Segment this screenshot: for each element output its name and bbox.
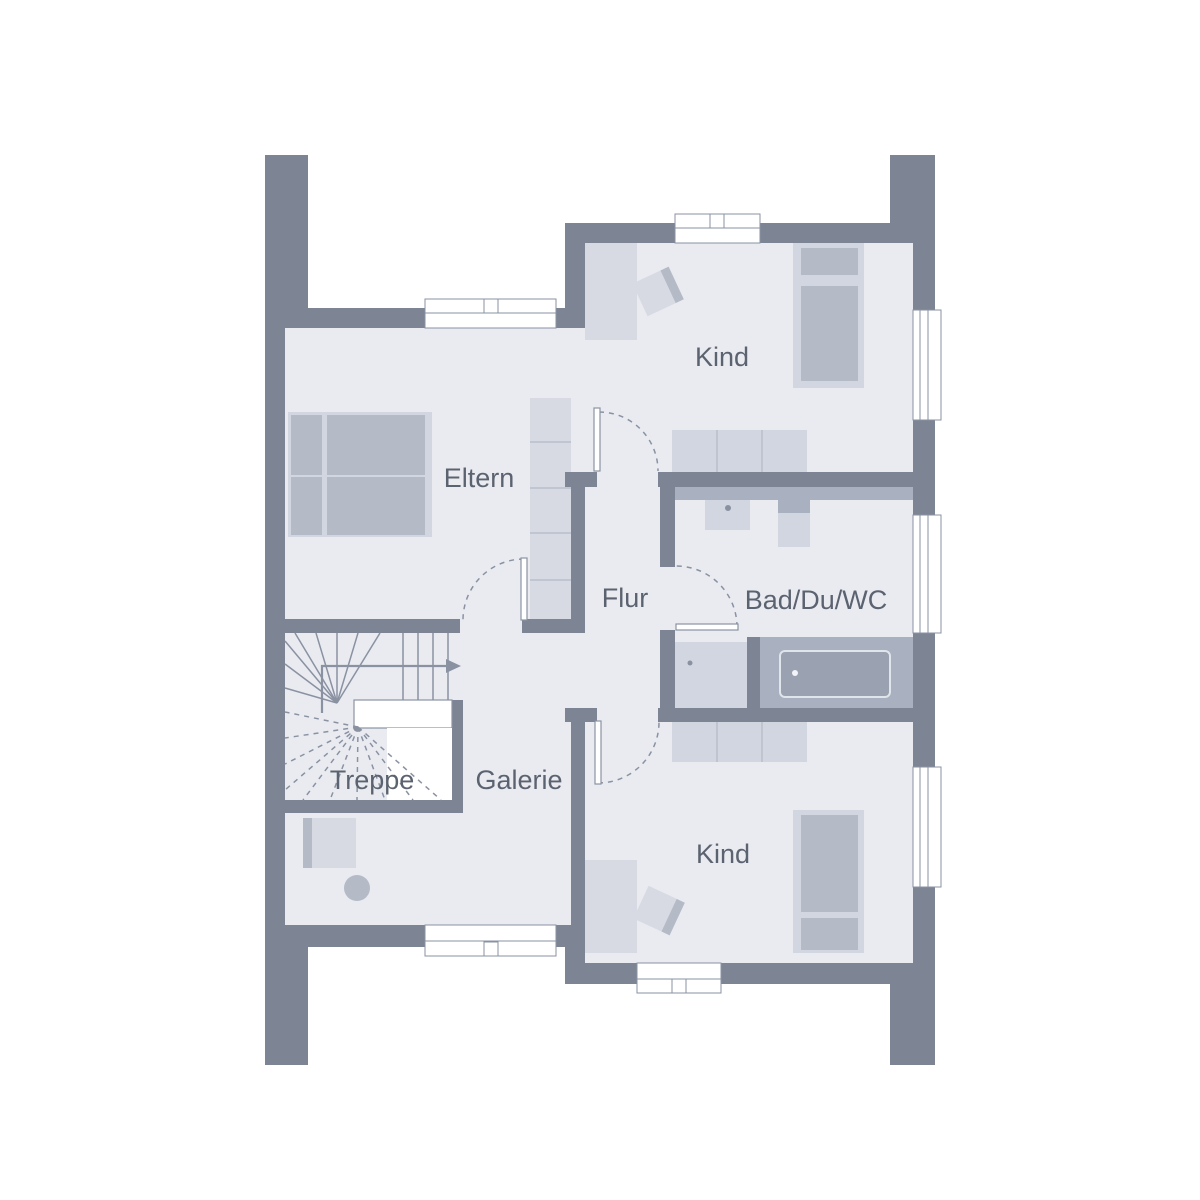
washbasin	[705, 500, 750, 530]
eltern-bottom-wall-pier	[522, 619, 583, 633]
eltern-wardrobe	[530, 398, 571, 628]
bad-left-wall-upper	[660, 487, 675, 567]
label-bad: Bad/Du/WC	[745, 585, 888, 615]
window-bad-right	[913, 515, 941, 633]
kind-top-bed	[793, 243, 864, 388]
kind-bottom-sideboard	[672, 718, 807, 762]
kind-top-wardrobe	[585, 243, 637, 340]
eltern-flur-wall	[571, 487, 585, 633]
window-galerie-bottom	[425, 925, 556, 956]
floor-plan-drawing: Eltern Kind Flur Bad/Du/WC Treppe Galeri…	[0, 0, 1200, 1200]
kind-top-sideboard	[672, 430, 807, 472]
galerie-chair	[344, 875, 370, 901]
galerie-kind-divider-wall	[571, 708, 585, 947]
wc-toilet	[778, 487, 810, 547]
window-kind-top	[675, 214, 760, 243]
party-wall-top-left	[265, 155, 308, 308]
label-flur: Flur	[602, 583, 649, 613]
stair-landing	[354, 700, 452, 728]
bad-kind-bottom-wall	[658, 708, 913, 722]
label-eltern: Eltern	[444, 463, 515, 493]
kind-bottom-bed	[793, 810, 864, 953]
window-kind-bottom	[637, 963, 721, 993]
eltern-bottom-wall	[265, 619, 460, 633]
window-kind-bottom-right	[913, 767, 941, 887]
double-bed	[288, 412, 432, 537]
bathtub	[760, 637, 913, 708]
stair-bottom-wall	[285, 800, 463, 813]
kind-bottom-wardrobe	[585, 860, 637, 953]
window-eltern-top	[425, 299, 556, 328]
divider-wall	[565, 472, 597, 487]
galerie-desk	[303, 818, 356, 868]
kind-bad-divider-wall	[658, 472, 913, 487]
party-wall-top-right	[890, 155, 935, 243]
kind-bottom-bottom-wall	[565, 963, 913, 984]
label-kind-top: Kind	[695, 342, 749, 372]
window-kind-top-right	[913, 310, 941, 420]
shower	[675, 642, 747, 708]
label-treppe: Treppe	[330, 765, 415, 795]
shower-partition-wall	[747, 637, 760, 708]
label-kind-bottom: Kind	[696, 839, 750, 869]
floor-plan-page: Eltern Kind Flur Bad/Du/WC Treppe Galeri…	[0, 0, 1200, 1200]
stair-side-wall	[451, 700, 463, 813]
label-galerie: Galerie	[475, 765, 562, 795]
